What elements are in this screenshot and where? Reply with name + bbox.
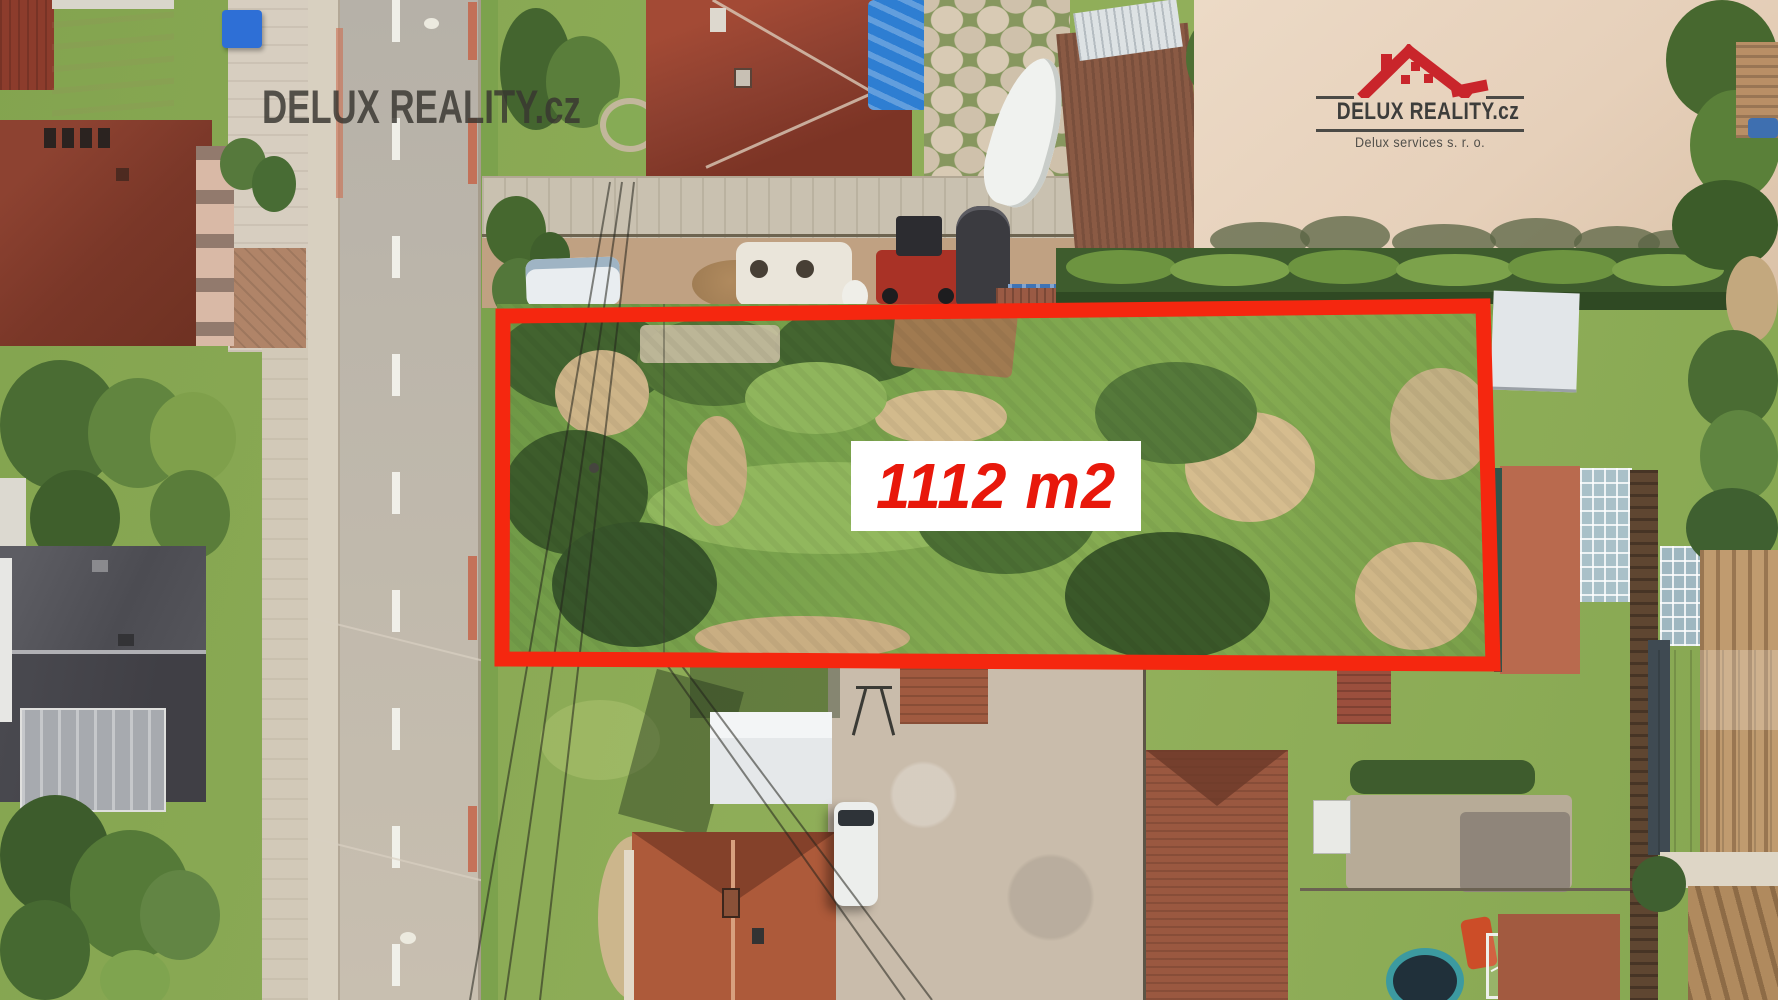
agency-logo: DELUX REALITY.cz Delux services s. r. o. — [1316, 44, 1524, 150]
aerial-photo: 1112 m2 DELUX REALITY.cz DELUX REALITY.c… — [0, 0, 1778, 1000]
logo-separator — [1316, 129, 1524, 132]
logo-subtitle: Delux services s. r. o. — [1326, 134, 1513, 150]
house-roof-icon — [1345, 44, 1495, 98]
logo-title: DELUX REALITY.cz — [1337, 98, 1503, 126]
area-label: 1112 m2 — [851, 441, 1141, 531]
area-label-text: 1112 m2 — [876, 449, 1116, 523]
watermark-text: DELUX REALITY.cz — [262, 79, 581, 134]
